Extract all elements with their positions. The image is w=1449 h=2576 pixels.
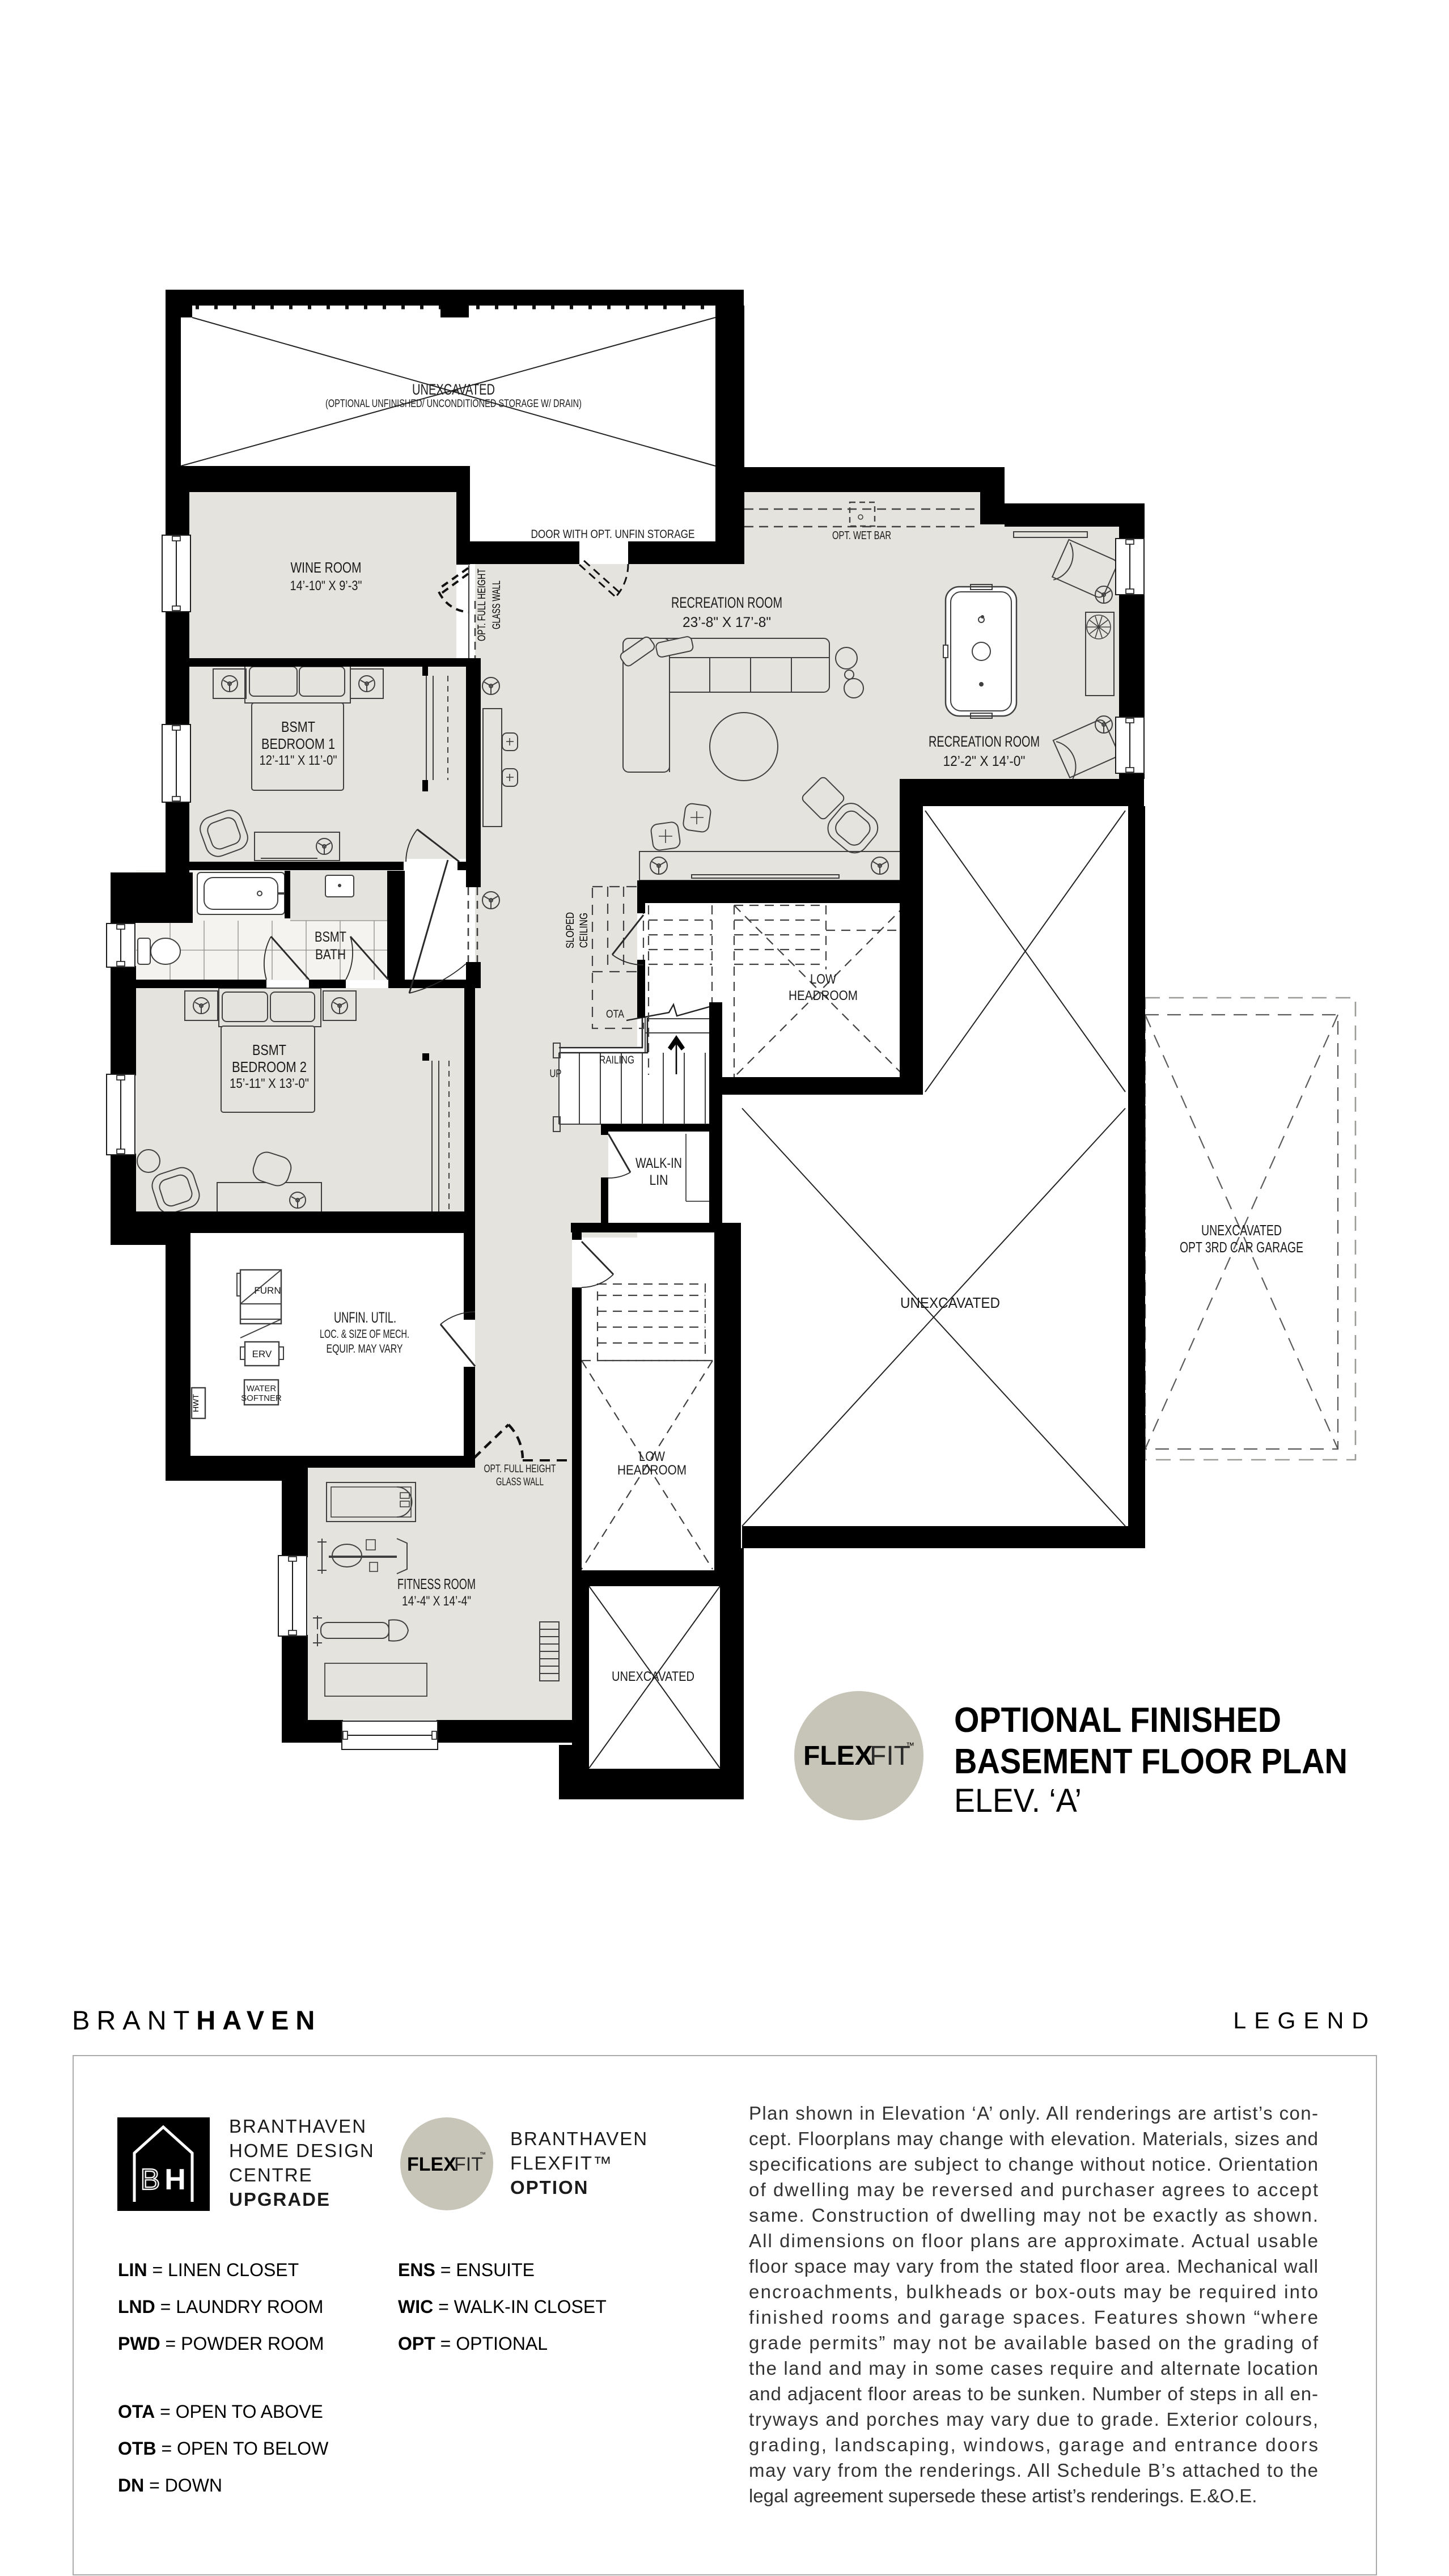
- svg-text:FIT: FIT: [870, 1741, 910, 1771]
- svg-text:and adjacent floor areas to be: and adjacent floor areas to be sunken. N…: [749, 2383, 1318, 2404]
- svg-text:UNEXCAVATED: UNEXCAVATED: [1201, 1222, 1282, 1239]
- svg-text:CEILING: CEILING: [578, 913, 590, 948]
- svg-text:B: B: [141, 2163, 160, 2196]
- svg-text:OPT. WET BAR: OPT. WET BAR: [832, 529, 891, 542]
- svg-text:(OPTIONAL UNFINISHED/ UNCONDIT: (OPTIONAL UNFINISHED/ UNCONDITIONED STOR…: [325, 398, 582, 410]
- svg-text:HEADROOM: HEADROOM: [617, 1463, 687, 1478]
- svg-text:OPT. FULL HEIGHT: OPT. FULL HEIGHT: [476, 569, 488, 641]
- svg-text:LIN = LINEN CLOSET: LIN = LINEN CLOSET: [118, 2260, 299, 2280]
- svg-text:BRANTHAVEN: BRANTHAVEN: [510, 2128, 648, 2149]
- svg-text:finished rooms and garage spac: finished rooms and garage spaces. Featur…: [749, 2307, 1318, 2328]
- svg-text:HOME DESIGN: HOME DESIGN: [229, 2140, 375, 2161]
- svg-text:OPT = OPTIONAL: OPT = OPTIONAL: [398, 2333, 548, 2354]
- svg-text:LOW: LOW: [810, 972, 836, 987]
- svg-text:ERV: ERV: [252, 1349, 272, 1359]
- svg-text:12’-2" X 14’-0": 12’-2" X 14’-0": [943, 753, 1026, 769]
- svg-text:LOC. & SIZE OF MECH.: LOC. & SIZE OF MECH.: [320, 1328, 409, 1341]
- svg-text:15’-11" X 13’-0": 15’-11" X 13’-0": [230, 1076, 309, 1091]
- svg-text:BATH: BATH: [315, 947, 346, 963]
- svg-text:UNEXCAVATED: UNEXCAVATED: [412, 381, 495, 398]
- svg-text:FURN: FURN: [254, 1285, 281, 1296]
- svg-text:FITNESS ROOM: FITNESS ROOM: [397, 1575, 476, 1592]
- svg-text:UP: UP: [550, 1068, 562, 1080]
- svg-text:CENTRE: CENTRE: [229, 2164, 313, 2185]
- svg-text:OTA = OPEN TO ABOVE: OTA = OPEN TO ABOVE: [118, 2401, 323, 2422]
- svg-text:14’-10" X 9’-3": 14’-10" X 9’-3": [290, 578, 362, 594]
- svg-text:may vary from the renderings.: may vary from the renderings. All Schedu…: [749, 2460, 1318, 2481]
- svg-text:legal agreement supersede thes: legal agreement supersede these artist’s…: [749, 2485, 1257, 2506]
- svg-text:OPTION: OPTION: [510, 2177, 589, 2198]
- svg-text:the land and may in some cases: the land and may in some cases require a…: [749, 2358, 1318, 2379]
- svg-text:WIC = WALK-IN CLOSET: WIC = WALK-IN CLOSET: [398, 2297, 607, 2317]
- svg-text:BRANTHAVEN: BRANTHAVEN: [72, 2005, 321, 2035]
- svg-text:ELEV. ‘A’: ELEV. ‘A’: [954, 1782, 1082, 1819]
- svg-text:23’-8" X 17’-8": 23’-8" X 17’-8": [683, 615, 771, 630]
- svg-text:PWD = POWDER ROOM: PWD = POWDER ROOM: [118, 2333, 324, 2354]
- svg-text:™: ™: [480, 2151, 486, 2158]
- svg-text:LOW: LOW: [639, 1449, 665, 1464]
- svg-text:tryways and porches may vary d: tryways and porches may vary due to grad…: [749, 2409, 1318, 2430]
- svg-text:WALK-IN: WALK-IN: [635, 1155, 682, 1171]
- svg-text:UNEXCAVATED: UNEXCAVATED: [612, 1669, 694, 1684]
- svg-text:RECREATION ROOM: RECREATION ROOM: [671, 594, 782, 611]
- svg-text:12’-11" X 11’-0": 12’-11" X 11’-0": [260, 753, 337, 768]
- svg-text:encroachments, bulkheads or bo: encroachments, bulkheads or box-outs may…: [749, 2281, 1318, 2302]
- svg-text:floor space may vary from the: floor space may vary from the stated flo…: [749, 2256, 1318, 2277]
- svg-text:RAILING: RAILING: [599, 1054, 634, 1066]
- svg-text:UPGRADE: UPGRADE: [229, 2189, 331, 2210]
- svg-text:BEDROOM 1: BEDROOM 1: [261, 735, 335, 752]
- svg-text:WATER: WATER: [247, 1384, 277, 1393]
- svg-text:Plan shown in Elevation ‘A’ on: Plan shown in Elevation ‘A’ only. All re…: [749, 2103, 1318, 2124]
- svg-text:FIT: FIT: [454, 2154, 483, 2175]
- svg-text:ENS = ENSUITE: ENS = ENSUITE: [398, 2260, 535, 2280]
- svg-text:BRANTHAVEN: BRANTHAVEN: [229, 2116, 367, 2137]
- svg-text:GLASS WALL: GLASS WALL: [496, 1476, 544, 1488]
- svg-text:DN = DOWN: DN = DOWN: [118, 2475, 222, 2495]
- svg-text:BSMT: BSMT: [252, 1041, 286, 1058]
- svg-text:BSMT: BSMT: [281, 718, 315, 735]
- svg-text:BASEMENT FLOOR PLAN: BASEMENT FLOOR PLAN: [954, 1742, 1348, 1781]
- svg-text:OPTIONAL FINISHED: OPTIONAL FINISHED: [954, 1701, 1281, 1740]
- svg-text:FLEX: FLEX: [803, 1741, 873, 1771]
- svg-text:14’-4" X 14’-4": 14’-4" X 14’-4": [402, 1594, 471, 1609]
- svg-text:™: ™: [906, 1741, 914, 1751]
- svg-text:LEGEND: LEGEND: [1233, 2007, 1376, 2033]
- svg-text:OTA: OTA: [606, 1009, 624, 1020]
- svg-text:same. Construction of dwelling: same. Construction of dwelling may not b…: [749, 2205, 1318, 2226]
- svg-text:SOFTNER: SOFTNER: [241, 1393, 282, 1403]
- svg-text:OPT 3RD CAR GARAGE: OPT 3RD CAR GARAGE: [1180, 1239, 1303, 1256]
- svg-text:FLEX: FLEX: [407, 2154, 456, 2175]
- svg-text:DOOR WITH OPT. UNFIN STORAGE: DOOR WITH OPT. UNFIN STORAGE: [531, 528, 695, 541]
- svg-text:FLEXFIT™: FLEXFIT™: [510, 2153, 613, 2173]
- svg-text:EQUIP. MAY VARY: EQUIP. MAY VARY: [327, 1342, 403, 1355]
- svg-text:HWT: HWT: [191, 1394, 200, 1412]
- svg-text:RECREATION ROOM: RECREATION ROOM: [929, 733, 1040, 750]
- svg-text:BSMT: BSMT: [315, 929, 346, 945]
- svg-text:LND = LAUNDRY ROOM: LND = LAUNDRY ROOM: [118, 2297, 323, 2317]
- svg-text:OPT. FULL HEIGHT: OPT. FULL HEIGHT: [484, 1463, 556, 1475]
- svg-text:GLASS WALL: GLASS WALL: [491, 581, 503, 629]
- svg-text:H: H: [164, 2163, 186, 2196]
- svg-text:SLOPED: SLOPED: [565, 912, 577, 948]
- svg-text:LIN: LIN: [650, 1172, 668, 1188]
- svg-text:of dwelling may be reversed an: of dwelling may be reversed and purchase…: [749, 2179, 1318, 2200]
- svg-text:HEADROOM: HEADROOM: [789, 988, 858, 1003]
- svg-text:UNFIN. UTIL.: UNFIN. UTIL.: [334, 1309, 396, 1326]
- svg-text:WINE ROOM: WINE ROOM: [291, 559, 362, 576]
- svg-text:OTB = OPEN TO BELOW: OTB = OPEN TO BELOW: [118, 2438, 329, 2459]
- svg-text:UNEXCAVATED: UNEXCAVATED: [900, 1294, 1000, 1311]
- svg-text:cept. Floorplans may change wi: cept. Floorplans may change with elevati…: [749, 2128, 1318, 2149]
- svg-text:grade permits” may not be avai: grade permits” may not be available base…: [749, 2332, 1319, 2353]
- svg-text:BEDROOM 2: BEDROOM 2: [232, 1058, 307, 1075]
